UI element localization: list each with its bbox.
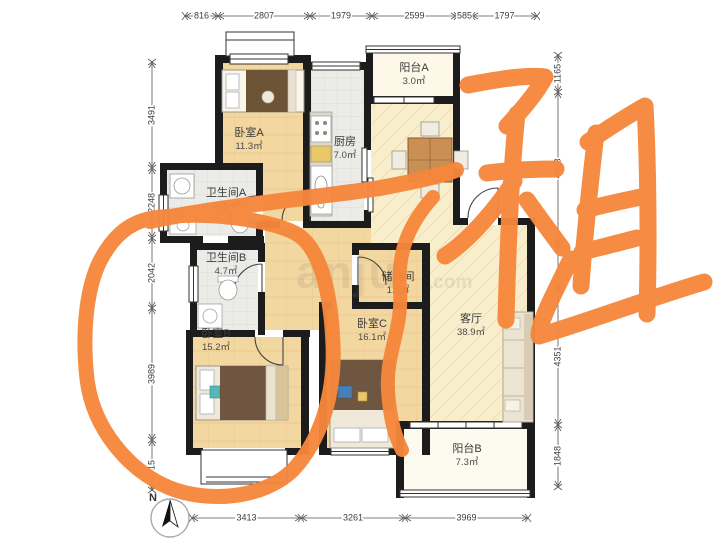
dim-label: 2599 — [404, 10, 424, 20]
dim-label: 3413 — [236, 512, 256, 522]
room-label-balcony-b: 阳台B — [452, 441, 481, 455]
room-area-bedroom-c: 16.1㎡ — [358, 332, 386, 343]
bed-a — [222, 70, 304, 112]
room-area-balcony-b: 7.3㎡ — [456, 457, 479, 468]
kitchen-slide-door-panel-1 — [362, 148, 367, 182]
dim-label: 4351 — [552, 346, 562, 366]
room-area-bedroom-a: 11.3㎡ — [235, 141, 263, 152]
dim-label: 3989 — [146, 364, 156, 384]
room-label-kitchen: 厨房 — [334, 135, 356, 148]
dimension-top: 8162807197925995851797 — [182, 10, 540, 20]
room-label-balcony-a: 阳台A — [399, 60, 429, 74]
room-label-bedroom-a: 卧室A — [234, 125, 264, 139]
balcony-a-floor — [373, 54, 453, 96]
room-area-kitchen: 7.0㎡ — [334, 150, 357, 161]
room-label-living-room: 客厅 — [460, 311, 482, 325]
dim-label: 1165 — [552, 64, 562, 83]
floorplan-image: anju .com 卧室A11.3㎡阳台A3.0㎡厨房7.0㎡卫生间A5.1㎡卫… — [0, 0, 720, 540]
dim-label: 3969 — [456, 512, 476, 522]
room-label-bedroom-c: 卧室C — [357, 316, 387, 330]
room-area-balcony-a: 3.0㎡ — [403, 76, 426, 87]
bed-b — [196, 366, 288, 420]
sofa — [503, 312, 533, 422]
dim-label: 2807 — [254, 10, 274, 20]
dim-label: 2042 — [146, 263, 156, 283]
dim-label: 1797 — [494, 10, 514, 20]
dim-label: 1979 — [331, 10, 351, 20]
dimension-bottom: 341332613969 — [189, 512, 531, 522]
dim-label: 1848 — [552, 446, 562, 466]
floorplan-svg: anju .com 卧室A11.3㎡阳台A3.0㎡厨房7.0㎡卫生间A5.1㎡卫… — [0, 0, 720, 540]
watermark-suffix: .com — [428, 272, 472, 293]
compass-north-label: N — [149, 492, 157, 504]
dimension-left: 349122482042398915 — [146, 59, 156, 493]
room-area-bathroom-b: 4.7㎡ — [215, 266, 238, 277]
washing-machine — [170, 174, 194, 198]
dim-label: 816 — [194, 10, 209, 20]
room-label-bathroom-b: 卫生间B — [206, 250, 246, 264]
dim-label: 2248 — [146, 193, 156, 213]
dim-label: 3261 — [343, 512, 363, 522]
room-label-bedroom-b: 卧室B — [201, 326, 230, 340]
room-area-living-room: 38.9㎡ — [457, 327, 485, 338]
room-label-bathroom-a: 卫生间A — [206, 185, 247, 199]
dim-label: 585 — [457, 10, 472, 20]
dim-label: 3491 — [146, 105, 156, 125]
room-area-bedroom-b: 15.2㎡ — [202, 342, 230, 353]
bedroom-a-bay-window — [226, 32, 294, 56]
